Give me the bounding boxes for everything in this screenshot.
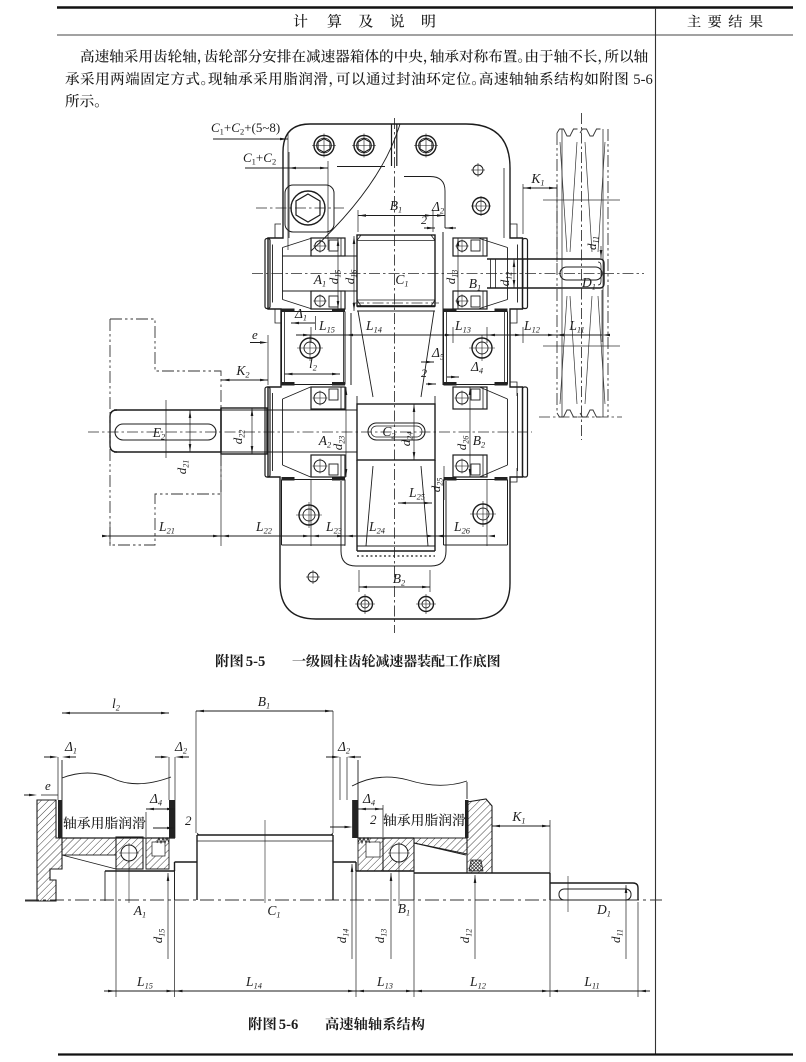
svg-text:2: 2 <box>370 812 377 827</box>
svg-text:C1+C2: C1+C2 <box>243 150 276 167</box>
svg-text:e: e <box>252 327 258 342</box>
svg-text:5-6: 5-6 <box>633 72 652 88</box>
svg-text:2: 2 <box>185 813 192 828</box>
svg-text:2: 2 <box>421 366 427 380</box>
svg-text:5-5: 5-5 <box>246 654 265 670</box>
svg-text:e: e <box>45 778 51 793</box>
svg-text:5-6: 5-6 <box>279 1017 298 1033</box>
svg-text:2: 2 <box>421 213 427 227</box>
